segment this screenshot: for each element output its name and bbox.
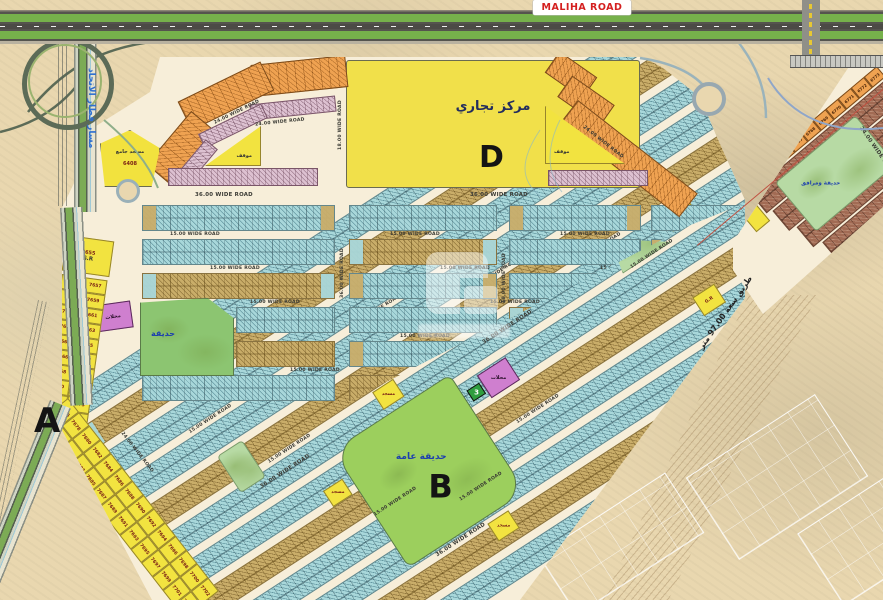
roundabout [692,82,726,116]
plot-row [349,273,497,299]
plot-row [236,341,335,367]
mosque-plot-label: مسجد [331,490,344,495]
friday-mosque-label: مسجد جامع [101,149,159,155]
east-block-group: 6763676467656766676767686769677067716772… [735,37,883,300]
crossing-road [802,0,820,56]
rail-corridor-text: مسار قطار الاتحاد [86,68,96,148]
bridge [790,55,883,68]
road-label: 15.00 WIDE ROAD [440,266,490,271]
badge-3-text: 3 [474,388,479,396]
plot-row [236,307,335,333]
road-label: 15.00 WIDE ROAD [400,334,450,339]
plot-row [349,239,497,265]
plot-row [142,205,335,231]
pink-plot-row [168,168,318,186]
section-b-label: B [428,470,452,502]
plot-row [349,205,497,231]
road-label: 18.00 WIDE ROAD [502,253,507,303]
pink-plot-row [548,170,648,186]
plot-row [509,205,641,231]
west-park-label: حديقة [151,329,175,338]
road-label: 15.00 WIDE ROAD [490,300,540,305]
mosque-plot-label: مسجد [382,392,395,397]
site-plan-map: حديقة عامة B مسجد مسجد مسجد G.R محلات [0,0,883,600]
plot-row [142,239,335,265]
road-label: 15.00 WIDE ROAD [210,266,260,271]
parking-label: موقف [554,149,569,155]
east-park-label: حديقة ومرافق [801,181,840,187]
parking-label: موقف [237,153,252,159]
friday-mosque-number: 6408 [101,161,159,167]
west-park: حديقة [140,298,234,376]
public-park-label: حديقة عامة [379,452,463,462]
plot-row [349,307,497,333]
road-label: 15.00 WIDE ROAD [390,232,440,237]
road-label: 15.00 WIDE ROAD [250,300,300,305]
shops-plot-label: محلات [105,312,121,320]
mosque-plot-label: مسجد [497,523,510,528]
maliha-road-text: MALIHA ROAD [542,2,623,13]
plot-row [142,273,335,299]
road-label: 36.00 WIDE ROAD [340,248,345,298]
plot-cell: 6765 [761,153,783,175]
road-label: 15.00 WIDE ROAD [560,232,610,237]
road-label: 36.00 WIDE ROAD [470,192,528,198]
road-label: 15.00 WIDE ROAD [290,368,340,373]
section-d-label: D [479,143,504,173]
plot-cell: 6764 [748,163,770,185]
shops-plot-label: محلات [491,375,507,381]
yellow-median-dashes [809,2,812,54]
road-label: 15.00 WIDE ROAD [170,232,220,237]
road-label: 18.00 WIDE ROAD [338,100,343,150]
roundabout-small [116,179,140,203]
road-label: 36.00 WIDE ROAD [195,192,253,198]
plot-cell: 7670 [45,378,70,396]
maliha-road-sign: MALIHA ROAD [533,0,631,15]
gr-plot-label: G.R [704,295,714,304]
section-a-label: A [34,404,60,438]
maliha-road-highway [0,10,883,44]
plot-row [142,375,335,401]
